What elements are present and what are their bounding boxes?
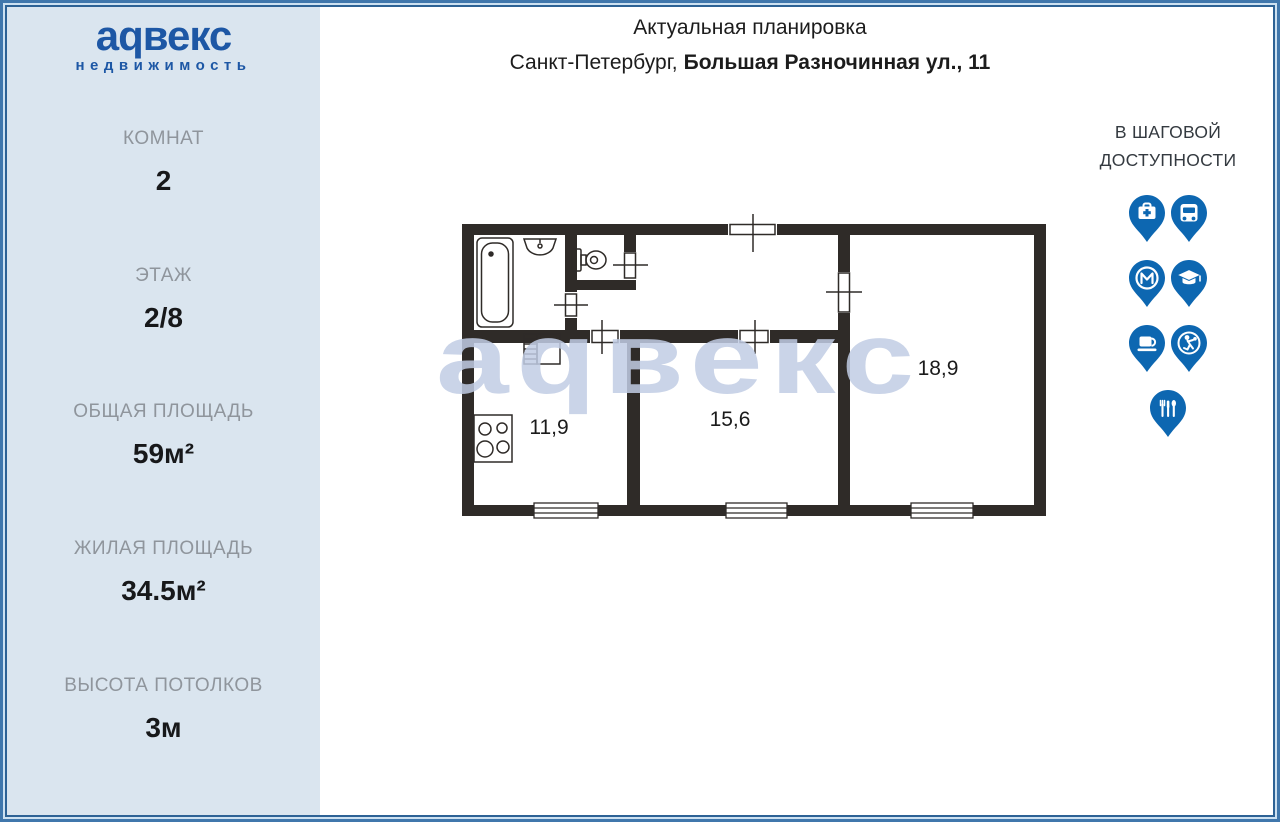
agency-logo: аqвекс недвижимость [7, 15, 320, 74]
cafe-pin-icon [1128, 324, 1166, 372]
poi-title-line2: ДОСТУПНОСТИ [1079, 146, 1257, 174]
agency-logo-brand: аqвекс [7, 15, 320, 57]
hospital-pin-icon [1128, 194, 1166, 242]
entrance-door [730, 214, 775, 252]
restaurant-pin-icon [1149, 389, 1187, 437]
stat-rooms: КОМНАТ 2 [7, 127, 320, 197]
bus-pin-icon [1170, 194, 1208, 242]
address-line: Санкт-Петербург,Большая Разночинная ул.,… [320, 48, 1180, 78]
stat-rooms-value: 2 [7, 165, 320, 197]
kitchen-area-label: 11,9 [529, 416, 568, 439]
stat-living-area: ЖИЛАЯ ПЛОЩАДЬ 34.5м² [7, 537, 320, 607]
stat-total-area-value: 59м² [7, 438, 320, 470]
room-middle-area-label: 15,6 [710, 408, 751, 431]
page-title: Актуальная планировка [320, 13, 1180, 43]
header: Актуальная планировка Санкт-Петербург,Бо… [320, 13, 1180, 78]
window-room-middle [726, 503, 787, 518]
agency-logo-subtitle: недвижимость [7, 57, 320, 74]
stat-ceiling-height-label: ВЫСОТА ПОТОЛКОВ [7, 674, 320, 698]
flyer-frame: аqвекс недвижимость КОМНАТ 2 ЭТАЖ 2/8 ОБ… [0, 0, 1280, 822]
address-city: Санкт-Петербург, [510, 51, 678, 74]
poi-icons [1126, 194, 1210, 437]
stat-total-area-label: ОБЩАЯ ПЛОЩАДЬ [7, 400, 320, 424]
window-kitchen [534, 503, 598, 518]
address-street: Большая Разночинная ул., 11 [684, 51, 991, 74]
kitchen-door [592, 320, 618, 354]
main-area: Актуальная планировка Санкт-Петербург,Бо… [320, 7, 1273, 815]
stat-ceiling-height-value: 3м [7, 712, 320, 744]
stat-ceiling-height: ВЫСОТА ПОТОЛКОВ 3м [7, 674, 320, 744]
stat-total-area: ОБЩАЯ ПЛОЩАДЬ 59м² [7, 400, 320, 470]
bathtub-icon [477, 238, 513, 327]
sport-pin-icon [1170, 324, 1208, 372]
flyer-frame-inner-border: аqвекс недвижимость КОМНАТ 2 ЭТАЖ 2/8 ОБ… [3, 3, 1277, 819]
room-right-area-label: 18,9 [918, 357, 959, 380]
stat-floor-value: 2/8 [7, 302, 320, 334]
toilet-icon [572, 249, 606, 271]
sidebar: аqвекс недвижимость КОМНАТ 2 ЭТАЖ 2/8 ОБ… [7, 7, 320, 815]
stat-living-area-label: ЖИЛАЯ ПЛОЩАДЬ [7, 537, 320, 561]
flyer-content: аqвекс недвижимость КОМНАТ 2 ЭТАЖ 2/8 ОБ… [5, 5, 1275, 817]
window-room-right [911, 503, 973, 518]
room-right-door [826, 273, 862, 312]
stat-rooms-label: КОМНАТ [7, 127, 320, 151]
bathroom-door [554, 294, 588, 316]
toilet-door [613, 253, 648, 278]
stat-floor: ЭТАЖ 2/8 [7, 264, 320, 334]
metro-pin-icon [1128, 259, 1166, 307]
stat-living-area-value: 34.5м² [7, 575, 320, 607]
stat-floor-label: ЭТАЖ [7, 264, 320, 288]
education-pin-icon [1170, 259, 1208, 307]
bathroom-sink-icon [524, 239, 556, 255]
poi-title-line1: В ШАГОВОЙ [1079, 118, 1257, 146]
stove-icon [474, 415, 512, 462]
room-middle-door [740, 320, 768, 354]
poi-panel: В ШАГОВОЙ ДОСТУПНОСТИ [1079, 118, 1257, 437]
floor-plan: 11,9 15,6 18,9 [458, 222, 1050, 518]
